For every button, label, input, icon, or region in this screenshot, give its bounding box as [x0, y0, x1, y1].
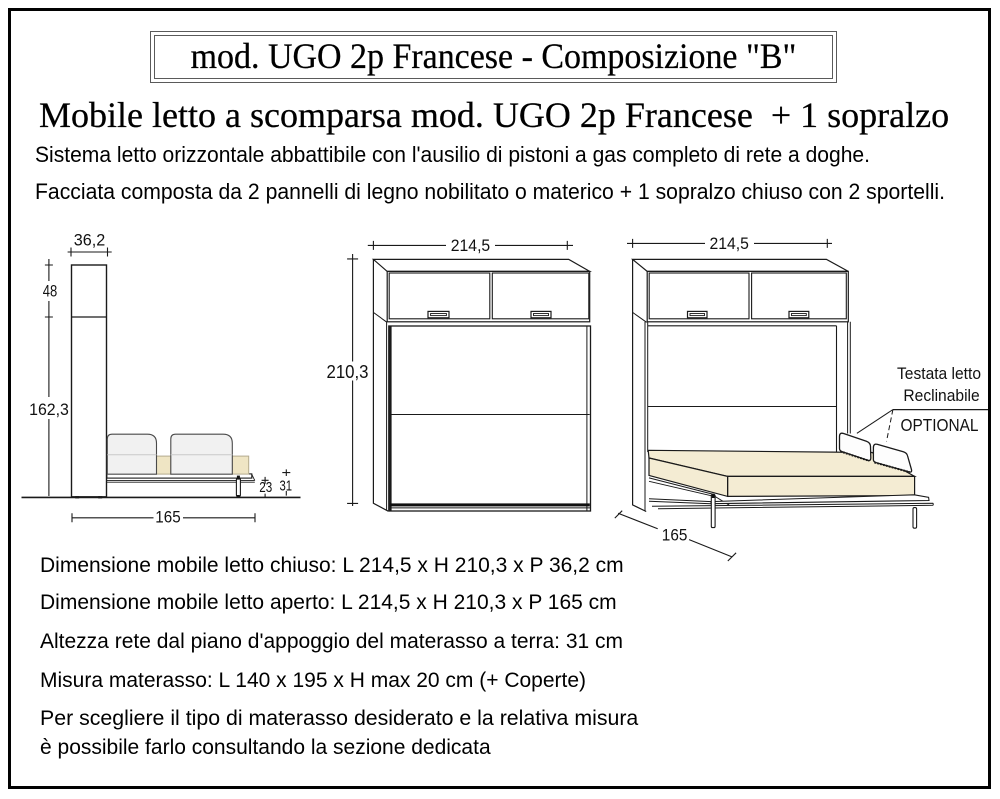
svg-text:210,3: 210,3 [327, 361, 369, 382]
svg-text:Reclinabile: Reclinabile [903, 387, 979, 405]
svg-text:214,5: 214,5 [710, 234, 749, 253]
svg-text:31: 31 [280, 478, 293, 494]
svg-text:23: 23 [259, 479, 272, 496]
svg-text:214,5: 214,5 [451, 236, 490, 255]
svg-text:OPTIONAL: OPTIONAL [901, 415, 979, 435]
svg-text:Testata letto: Testata letto [897, 365, 981, 383]
svg-text:165: 165 [155, 508, 180, 527]
svg-text:36,2: 36,2 [74, 231, 106, 250]
svg-text:165: 165 [662, 526, 688, 545]
svg-text:162,3: 162,3 [29, 400, 69, 419]
svg-text:48: 48 [43, 281, 58, 300]
